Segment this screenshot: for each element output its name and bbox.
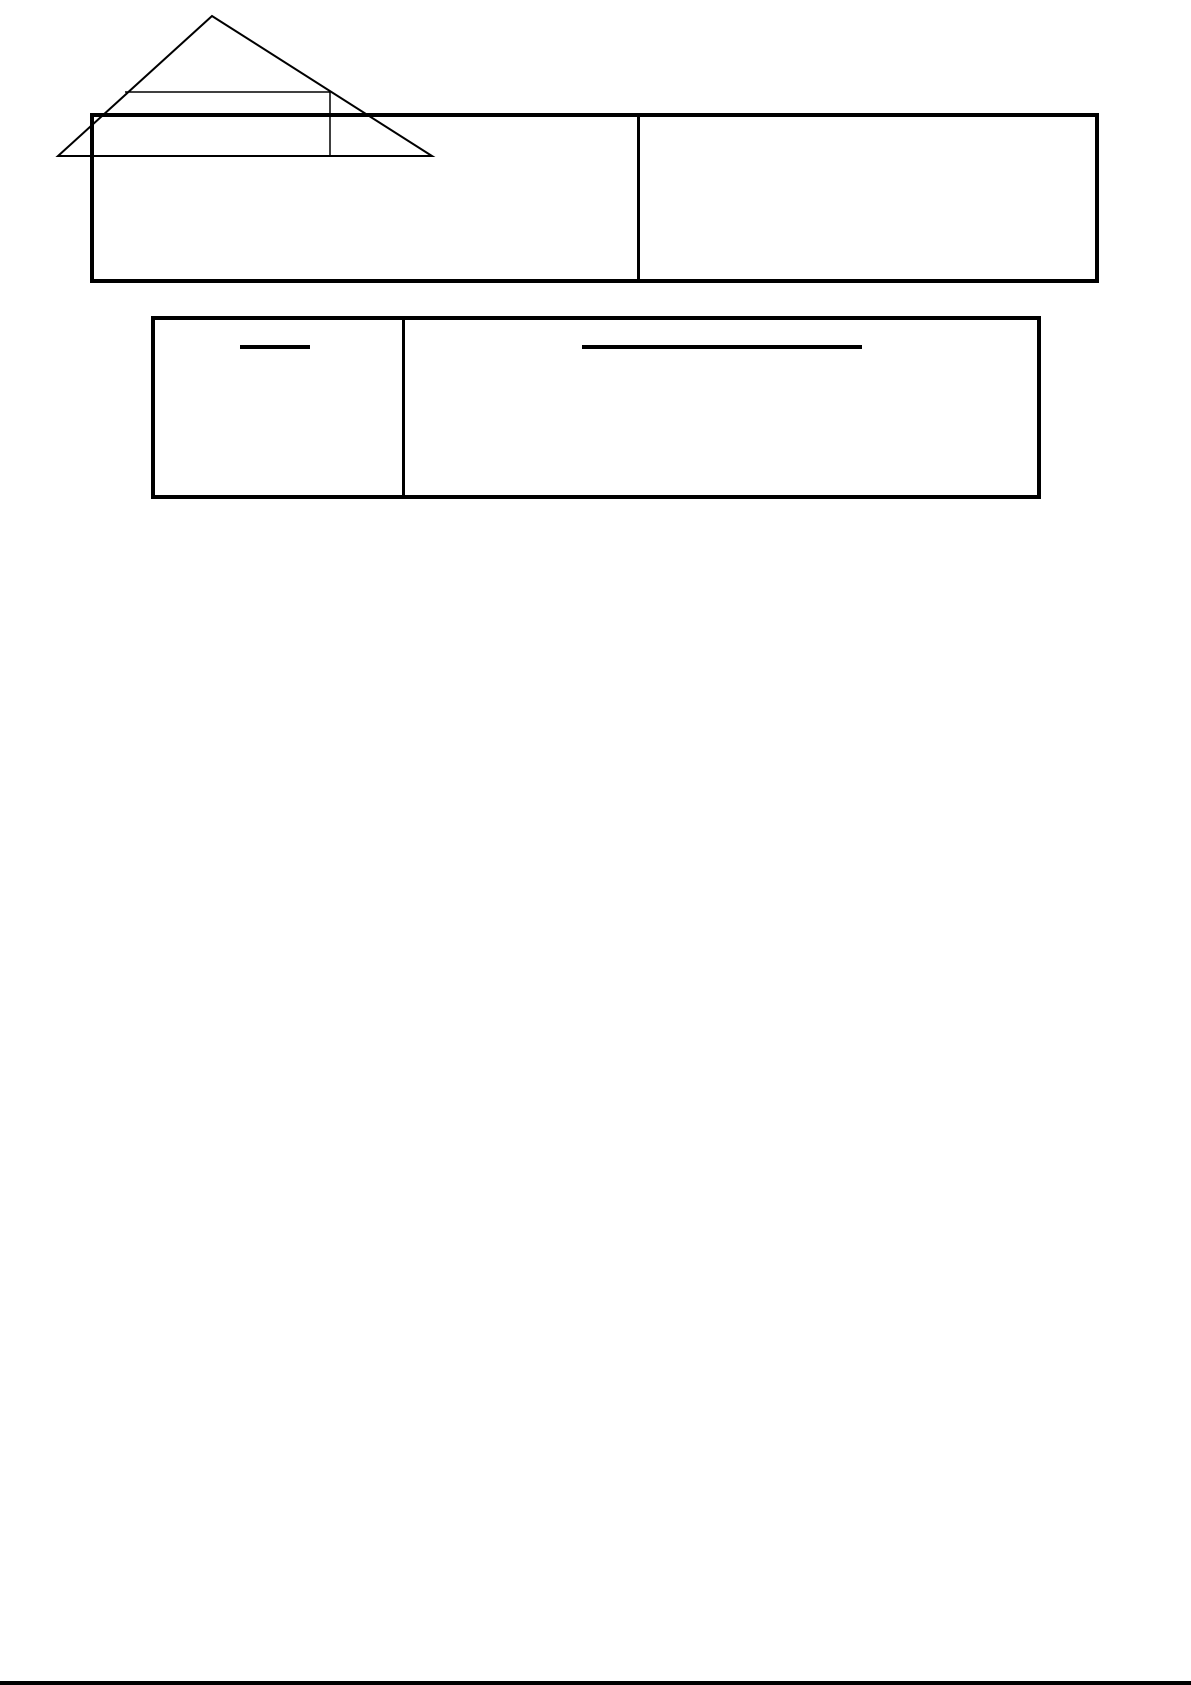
document-page [0,0,1191,1685]
page-bottom-bar [0,1681,1191,1685]
answer-blank-long [582,345,862,349]
second-table [151,316,1041,499]
triangle-figure [0,0,460,170]
top-table-right-cell[interactable] [640,117,1095,279]
triangle-outline [58,16,432,156]
answer-blank-short [240,345,310,349]
